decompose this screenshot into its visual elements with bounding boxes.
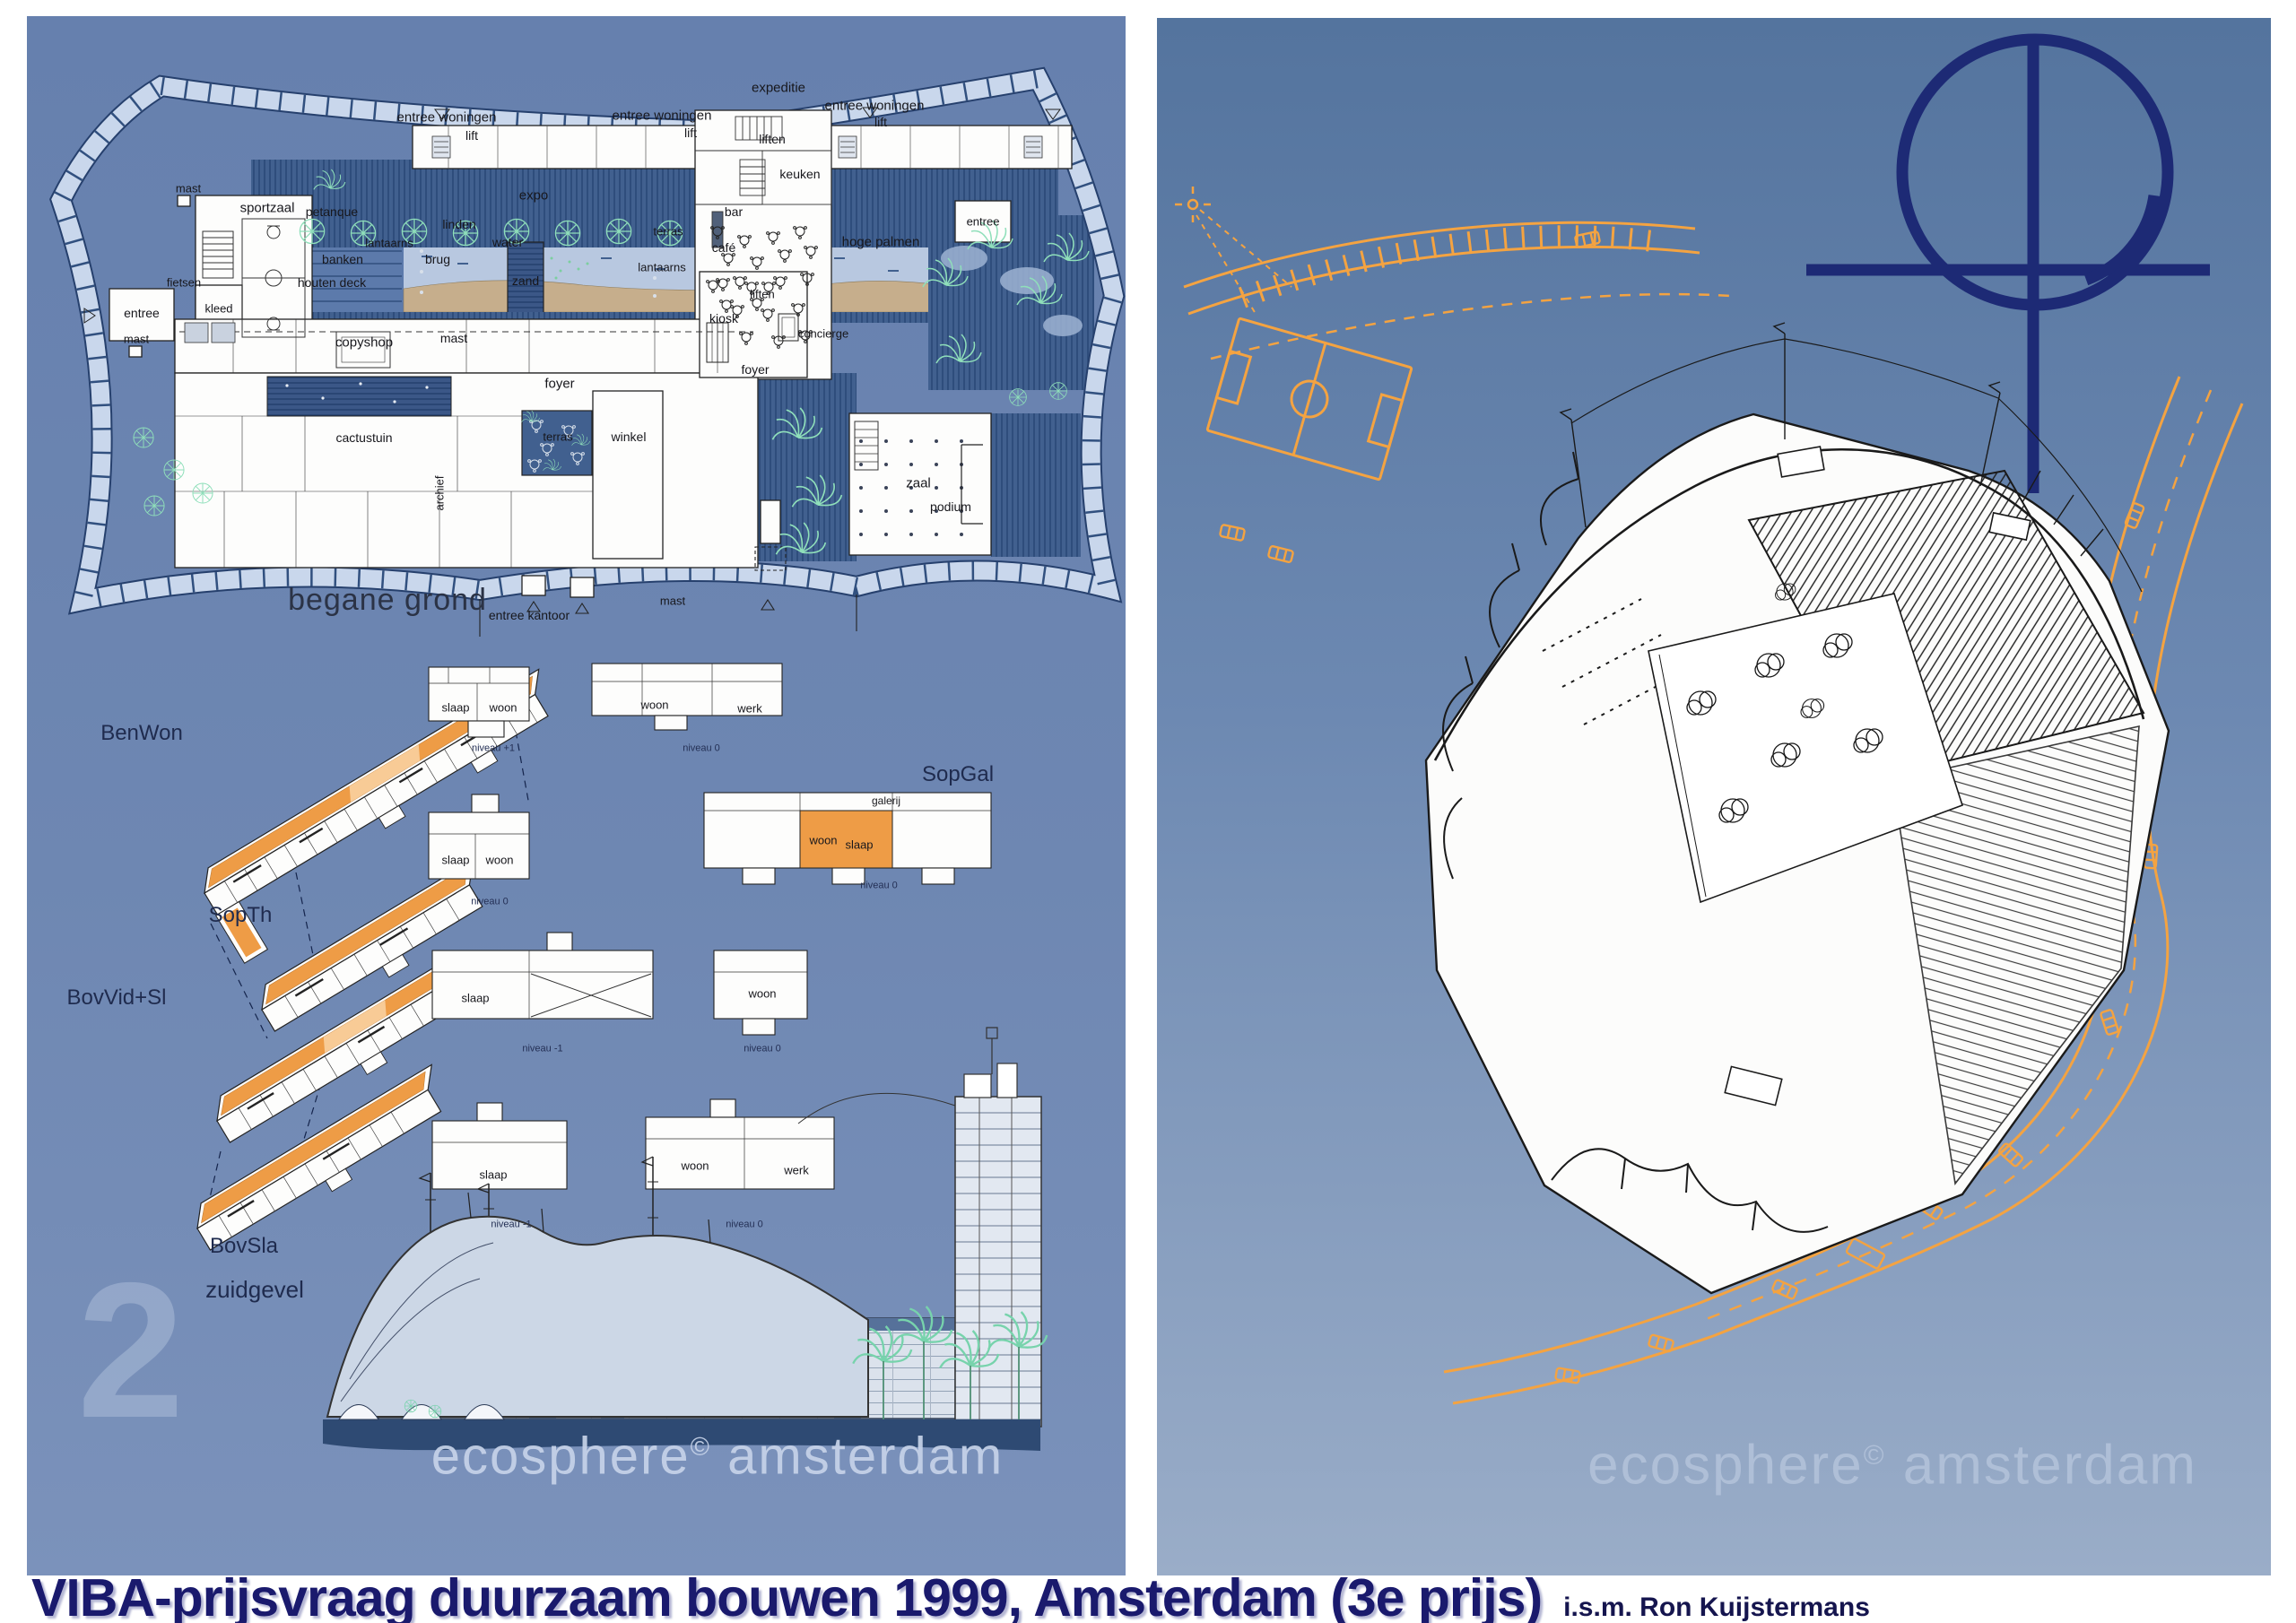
plan-label: niveau +1 [472,744,515,754]
plan-label: niveau 0 [744,1045,781,1055]
plan-label: entree kantoor [489,609,570,621]
poster-root: expeditieentree woningenliftentree wonin… [0,0,2296,1623]
plan-label: cactustuin [335,431,392,444]
plan-label: expeditie [752,82,805,95]
plan-label: archief [434,475,446,510]
plan-label: woon [485,855,513,866]
plan-label: mast [440,332,467,344]
plan-label: banken [322,253,363,265]
plan-label: woon [748,988,776,1000]
plan-label: concierge [798,328,848,340]
plan-label: BenWon [100,723,183,744]
plan-label: terras [543,431,572,443]
plan-label: lift [465,129,478,142]
plan-label: niveau -1 [491,1220,531,1230]
plan-label: linden [442,218,475,230]
plan-label: petanque [306,205,358,218]
left-panel: expeditieentree woningenliftentree wonin… [27,16,1126,1575]
poster-title: VIBA-prijsvraag duurzaam bouwen 1999, Am… [31,1575,1542,1620]
plan-label: liften [759,133,786,145]
building-sketch [1426,323,2169,1293]
plan-label: foyer [544,378,574,391]
plan-label: BovVid+Sl [67,987,167,1009]
plan-label: slaap [461,993,489,1004]
plan-label: bar [725,205,743,218]
plan-label: entree [967,216,1000,228]
plan-label: niveau 0 [860,881,898,891]
plan-label: werk [784,1165,808,1176]
plan-label: zaal [906,477,931,490]
plan-label: sportzaal [240,202,295,215]
compass-logo [1806,39,2210,493]
watermark-text: ecosphere [1587,1435,1864,1497]
plan-label: SopTh [209,905,273,926]
plan-label: woon [640,699,668,711]
plan-label: woon [809,835,837,846]
plan-label: niveau 0 [683,744,720,754]
background-numeral: 2 [77,1254,185,1446]
watermark-city: amsterdam [727,1428,1004,1486]
plan-label: entree woningen [397,111,497,125]
left-labels: expeditieentree woningenliftentree wonin… [27,16,1126,1575]
concept-sketch-drawing [1157,18,2271,1575]
plan-label: copyshop [335,336,393,350]
plan-label: fietsen [167,277,201,289]
plan-label: mast [176,183,201,195]
plan-label: SopGal [922,764,994,785]
plan-label: lantaarns [365,238,413,249]
plan-label: niveau -1 [522,1045,562,1055]
football-pitch [1207,318,1412,480]
plan-label: zuidgevel [205,1278,304,1301]
plan-label: zand [512,274,539,287]
plan-label: water [492,236,523,248]
plan-label: terras [653,226,683,238]
plan-label: slaap [845,839,873,851]
plan-label: niveau 0 [726,1220,763,1230]
plan-label: entree woningen [613,109,712,123]
plan-label: slaap [441,702,469,714]
caption-bar: VIBA-prijsvraag duurzaam bouwen 1999, Am… [0,1575,2296,1623]
plan-label: lift [684,126,697,139]
copyright-icon: © [1864,1439,1886,1471]
watermark-text: ecosphere [431,1428,691,1486]
plan-label: podium [930,500,971,513]
plan-label: woon [681,1160,709,1172]
copyright-icon: © [691,1433,711,1462]
plan-label: mast [660,595,685,607]
plan-label: mast [124,334,149,345]
plan-label: keuken [779,168,820,180]
light-pole [1175,187,1291,314]
plan-label: begane grond [288,585,487,615]
poster-credit: i.s.m. Ron Kuijstermans [1563,1593,1870,1623]
watermark-right: ecosphere© amsterdam [1587,1434,2197,1497]
plan-label: entree [124,307,160,319]
plan-label: niveau 0 [471,898,509,907]
plan-label: café [712,241,735,254]
plan-label: BovSla [210,1236,278,1257]
plan-label: lift [874,116,887,128]
plan-label: liften [750,289,774,300]
plan-label: slaap [479,1169,507,1181]
plan-label: woon [489,702,517,714]
plan-label: lantaarns [638,262,685,273]
plan-label: houten deck [298,276,366,289]
plan-label: entree woningen [825,100,925,113]
plan-label: galerij [872,795,900,806]
plan-label: winkel [612,430,647,443]
plan-label: kleed [204,303,232,315]
watermark-city: amsterdam [1903,1435,2197,1497]
plan-label: werk [737,703,761,715]
watermark-left: ecosphere© amsterdam [431,1427,1004,1487]
plan-label: slaap [441,855,469,866]
plan-label: foyer [741,363,769,376]
plan-label: hoge palmen [842,236,920,249]
plan-label: expo [519,189,549,203]
plan-label: kiosk [709,312,738,325]
right-panel: ecosphere© amsterdam [1157,18,2271,1575]
plan-label: brug [425,253,450,265]
